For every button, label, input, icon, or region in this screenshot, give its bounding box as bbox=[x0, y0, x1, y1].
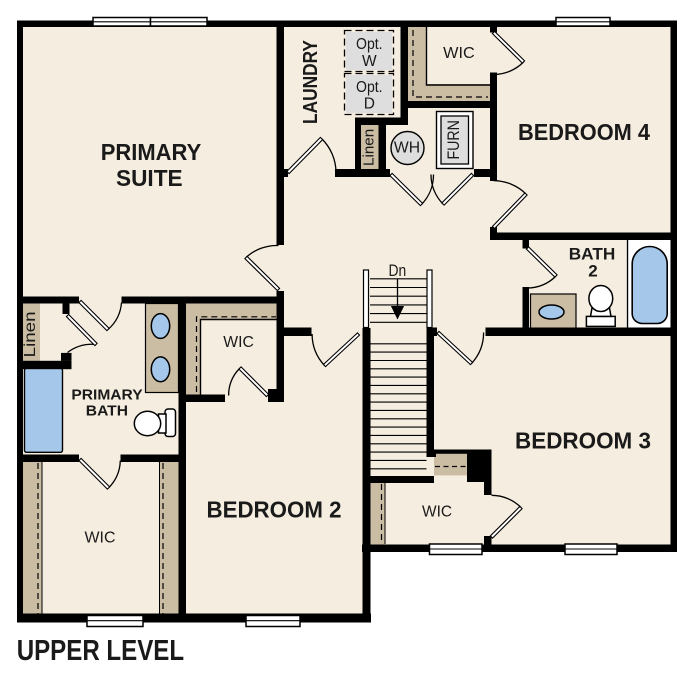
svg-text:Opt.: Opt. bbox=[356, 36, 383, 53]
svg-text:SUITE: SUITE bbox=[116, 165, 183, 191]
svg-text:WIC: WIC bbox=[443, 45, 475, 62]
svg-text:WIC: WIC bbox=[422, 504, 452, 521]
svg-text:BEDROOM 4: BEDROOM 4 bbox=[518, 119, 650, 145]
svg-text:BATH: BATH bbox=[86, 402, 128, 419]
svg-text:PRIMARY: PRIMARY bbox=[71, 386, 142, 403]
svg-text:2: 2 bbox=[588, 262, 597, 281]
svg-text:Linen: Linen bbox=[362, 129, 378, 166]
svg-text:Opt.: Opt. bbox=[356, 79, 383, 96]
svg-text:BATH: BATH bbox=[569, 244, 616, 263]
svg-text:Linen: Linen bbox=[22, 311, 39, 357]
svg-text:LAUNDRY: LAUNDRY bbox=[299, 40, 322, 124]
svg-text:Dn: Dn bbox=[389, 261, 407, 280]
svg-text:WIC: WIC bbox=[223, 334, 254, 351]
svg-text:UPPER LEVEL: UPPER LEVEL bbox=[17, 635, 184, 667]
svg-text:WH: WH bbox=[394, 140, 420, 157]
svg-text:FURN: FURN bbox=[444, 120, 463, 159]
svg-text:PRIMARY: PRIMARY bbox=[101, 139, 202, 165]
svg-text:WIC: WIC bbox=[85, 530, 116, 547]
svg-text:W: W bbox=[362, 53, 377, 70]
svg-text:BEDROOM 3: BEDROOM 3 bbox=[515, 428, 651, 454]
svg-text:D: D bbox=[364, 96, 375, 113]
svg-text:BEDROOM 2: BEDROOM 2 bbox=[207, 496, 342, 522]
